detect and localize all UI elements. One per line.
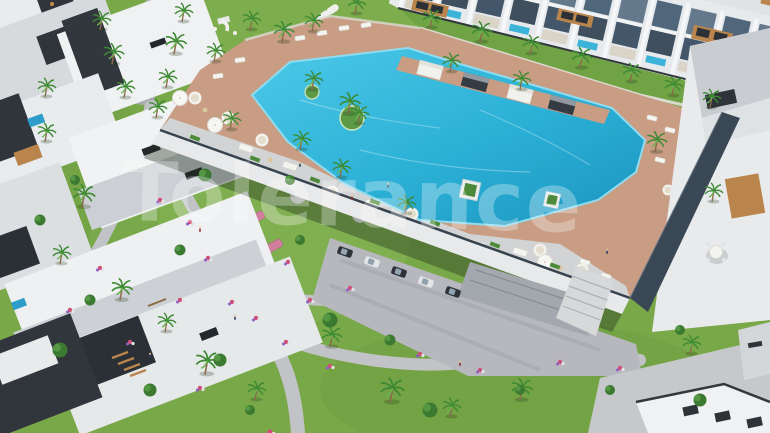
pool-planter <box>543 191 560 208</box>
pool-planter <box>459 179 480 200</box>
resort-aerial-render: Tolerance <box>0 0 770 433</box>
rooftop-wood-deck <box>725 173 765 218</box>
render-canvas <box>0 0 770 433</box>
rooftop-table <box>706 242 728 264</box>
